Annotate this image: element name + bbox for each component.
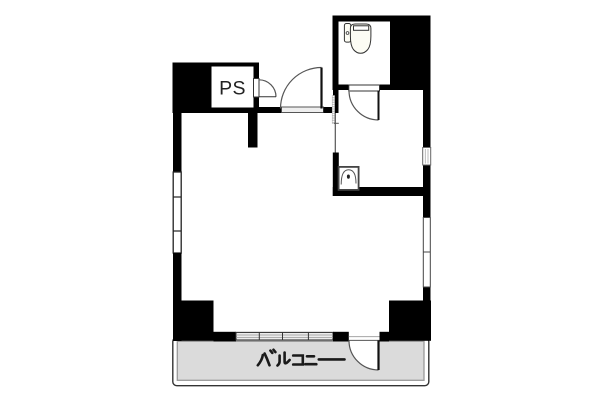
svg-text:PS: PS bbox=[219, 77, 246, 99]
